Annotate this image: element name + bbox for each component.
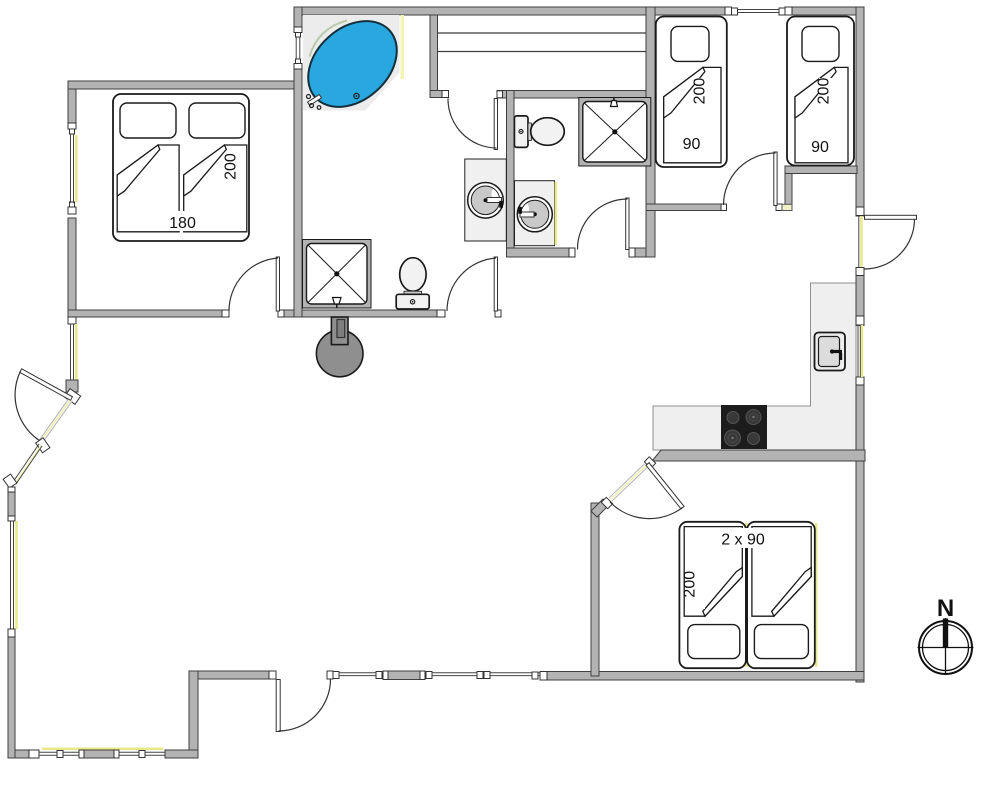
svg-text:200: 200	[682, 571, 699, 598]
svg-text:200: 200	[692, 78, 709, 105]
svg-text:180: 180	[169, 215, 196, 232]
svg-text:2 x 90: 2 x 90	[721, 532, 765, 549]
svg-text:200: 200	[223, 153, 240, 180]
svg-text:N: N	[937, 595, 954, 622]
svg-text:90: 90	[683, 136, 701, 153]
svg-text:200: 200	[816, 78, 833, 105]
svg-text:90: 90	[811, 139, 829, 156]
